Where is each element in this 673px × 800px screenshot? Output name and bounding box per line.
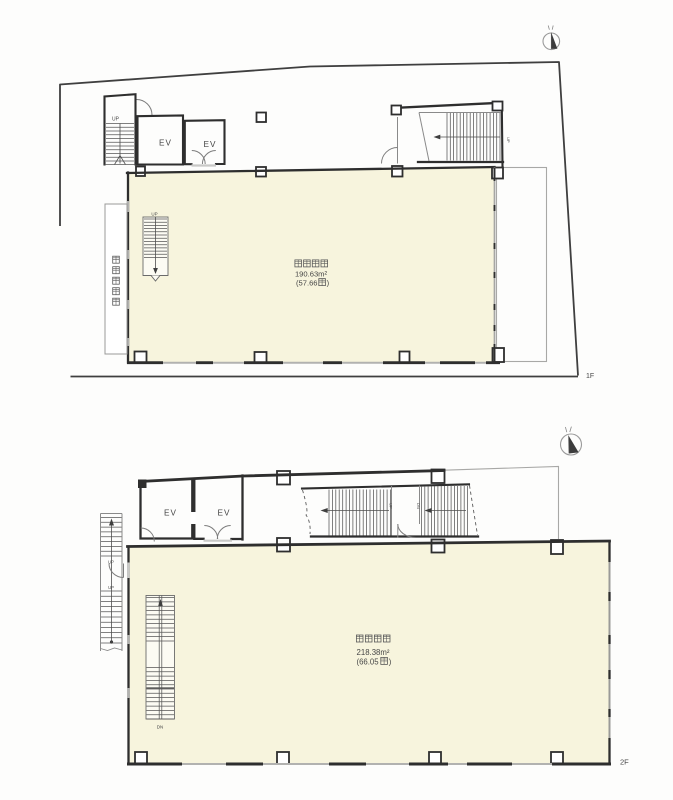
svg-text:DN: DN	[157, 725, 164, 730]
svg-text:DN: DN	[416, 503, 421, 509]
svg-text:EV: EV	[218, 509, 231, 518]
svg-text:218.38m²: 218.38m²	[357, 648, 390, 657]
svg-text:1F: 1F	[586, 373, 594, 380]
svg-text:(66.05: (66.05	[357, 657, 380, 666]
svg-text:UP: UP	[112, 117, 120, 123]
svg-text:UP: UP	[151, 212, 157, 217]
svg-text:2F: 2F	[620, 758, 629, 767]
svg-text:EV: EV	[159, 139, 172, 148]
svg-text:UP: UP	[389, 503, 394, 509]
svg-text:UP: UP	[506, 137, 511, 143]
svg-text:190.63m²: 190.63m²	[295, 269, 328, 278]
svg-text:UP: UP	[108, 585, 114, 590]
svg-text:EV: EV	[204, 140, 217, 149]
svg-text:(57.66: (57.66	[296, 278, 318, 287]
svg-text:): )	[389, 657, 392, 666]
svg-text:EV: EV	[164, 509, 177, 518]
